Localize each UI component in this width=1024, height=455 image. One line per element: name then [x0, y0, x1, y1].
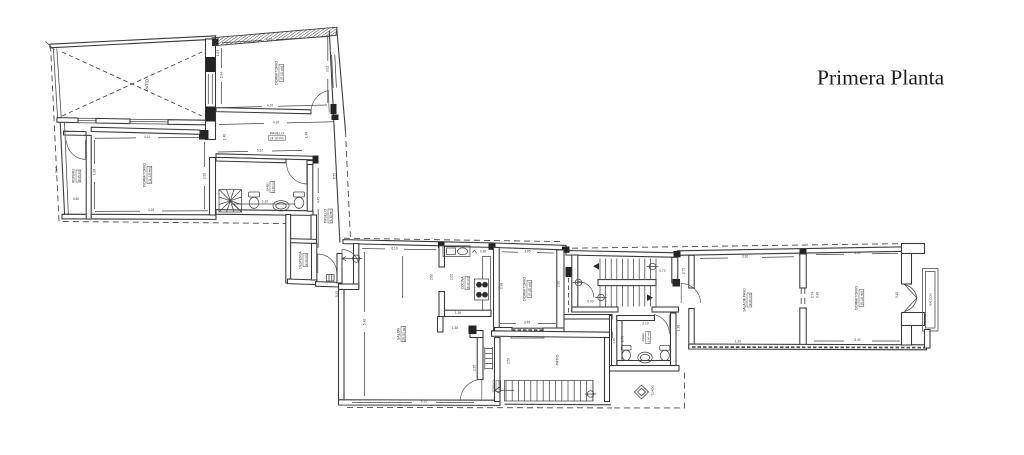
- svg-text:(9.45 m²): (9.45 m²): [528, 282, 532, 296]
- svg-text:(25.30 m²): (25.30 m²): [402, 326, 406, 342]
- svg-text:(9.10 m²): (9.10 m²): [860, 291, 864, 305]
- svg-text:0.80: 0.80: [73, 197, 79, 201]
- svg-text:PASILLO: PASILLO: [323, 209, 327, 223]
- svg-text:2.35: 2.35: [473, 365, 477, 371]
- svg-text:(6.10 m²): (6.10 m²): [329, 210, 333, 223]
- svg-text:1.36: 1.36: [677, 325, 681, 331]
- svg-text:(1.80 m²): (1.80 m²): [646, 332, 650, 344]
- svg-text:3.46: 3.46: [816, 292, 820, 298]
- svg-text:2.44: 2.44: [220, 72, 224, 78]
- svg-text:1.36: 1.36: [455, 311, 461, 315]
- svg-text:8.55: 8.55: [333, 173, 337, 179]
- svg-text:SALA DE PASO: SALA DE PASO: [742, 288, 746, 312]
- svg-text:0.90: 0.90: [587, 300, 593, 304]
- svg-text:0.70: 0.70: [659, 269, 665, 273]
- svg-text:3.45: 3.45: [524, 320, 530, 324]
- svg-text:1.20: 1.20: [735, 339, 741, 343]
- svg-text:TEJADO: TEJADO: [651, 384, 655, 397]
- svg-text:4.20: 4.20: [267, 104, 273, 108]
- svg-text:TERRAZA: TERRAZA: [491, 379, 495, 393]
- svg-text:BALCON: BALCON: [929, 293, 933, 305]
- svg-text:0.45: 0.45: [612, 338, 616, 344]
- svg-text:4.18: 4.18: [148, 208, 154, 212]
- svg-text:PASILLO: PASILLO: [270, 132, 284, 136]
- svg-text:1.76: 1.76: [621, 336, 625, 342]
- svg-text:1.03: 1.03: [216, 50, 220, 56]
- svg-text:3.02: 3.02: [326, 66, 330, 72]
- svg-text:(9.10 m²): (9.10 m²): [280, 66, 284, 80]
- svg-text:1.10: 1.10: [262, 200, 268, 204]
- svg-text:PATIO: PATIO: [556, 355, 560, 366]
- svg-text:4.45: 4.45: [317, 197, 321, 203]
- svg-text:0.75: 0.75: [682, 268, 686, 274]
- svg-text:(4.10 m²): (4.10 m²): [271, 136, 284, 140]
- svg-text:2.60: 2.60: [430, 274, 434, 280]
- svg-text:1.08: 1.08: [93, 169, 97, 175]
- svg-text:2.74: 2.74: [811, 292, 815, 298]
- svg-text:Primera Planta: Primera Planta: [817, 66, 945, 90]
- svg-text:(11.10 m²): (11.10 m²): [148, 167, 152, 183]
- svg-text:(0.95 m²): (0.95 m²): [77, 170, 81, 182]
- svg-text:6.10: 6.10: [391, 247, 397, 251]
- svg-text:ASEO: ASEO: [641, 333, 645, 342]
- svg-text:2.10: 2.10: [642, 321, 648, 325]
- svg-text:3.40: 3.40: [854, 251, 860, 255]
- svg-text:4.10: 4.10: [273, 121, 279, 125]
- svg-text:3.95: 3.95: [524, 250, 530, 254]
- svg-text:1.35: 1.35: [452, 326, 458, 330]
- svg-text:3.40: 3.40: [854, 338, 860, 342]
- svg-text:3.30: 3.30: [742, 255, 748, 259]
- svg-text:PATIO: PATIO: [145, 78, 150, 91]
- svg-text:2.50: 2.50: [507, 358, 511, 364]
- svg-text:(5.10 m²): (5.10 m²): [466, 277, 470, 290]
- svg-text:6.10: 6.10: [421, 400, 427, 404]
- svg-text:2.05: 2.05: [450, 274, 454, 280]
- svg-text:4.14: 4.14: [144, 135, 150, 139]
- svg-text:2.50: 2.50: [203, 173, 207, 179]
- svg-text:(4.30 m²): (4.30 m²): [271, 181, 275, 193]
- svg-text:2.96: 2.96: [500, 283, 504, 289]
- svg-text:1.40: 1.40: [223, 134, 227, 140]
- svg-text:COCINA: COCINA: [460, 276, 464, 290]
- svg-text:(1.30 m²): (1.30 m²): [497, 380, 501, 391]
- svg-text:(2.20 m²): (2.20 m²): [304, 254, 308, 266]
- svg-text:DORMITORIO: DORMITORIO: [142, 163, 146, 187]
- svg-text:5.40: 5.40: [363, 319, 367, 325]
- svg-text:1.48: 1.48: [305, 132, 309, 138]
- svg-text:(9.10 m²): (9.10 m²): [748, 294, 752, 307]
- svg-text:BAÑO: BAÑO: [264, 182, 269, 191]
- svg-text:DORMITORIO: DORMITORIO: [522, 277, 526, 301]
- svg-text:4.15: 4.15: [266, 37, 272, 41]
- svg-text:3.97: 3.97: [55, 167, 59, 173]
- svg-text:5.32: 5.32: [257, 148, 263, 152]
- svg-text:DORMITORIO: DORMITORIO: [854, 286, 858, 310]
- svg-text:3.40: 3.40: [895, 292, 899, 298]
- svg-text:DORMITORIO: DORMITORIO: [274, 61, 278, 85]
- svg-text:0.36: 0.36: [480, 249, 486, 253]
- svg-text:SALON: SALON: [396, 328, 400, 341]
- svg-text:2.90: 2.90: [557, 281, 561, 287]
- svg-text:DESPENSA: DESPENSA: [298, 250, 302, 268]
- svg-text:ROPERO: ROPERO: [71, 169, 75, 183]
